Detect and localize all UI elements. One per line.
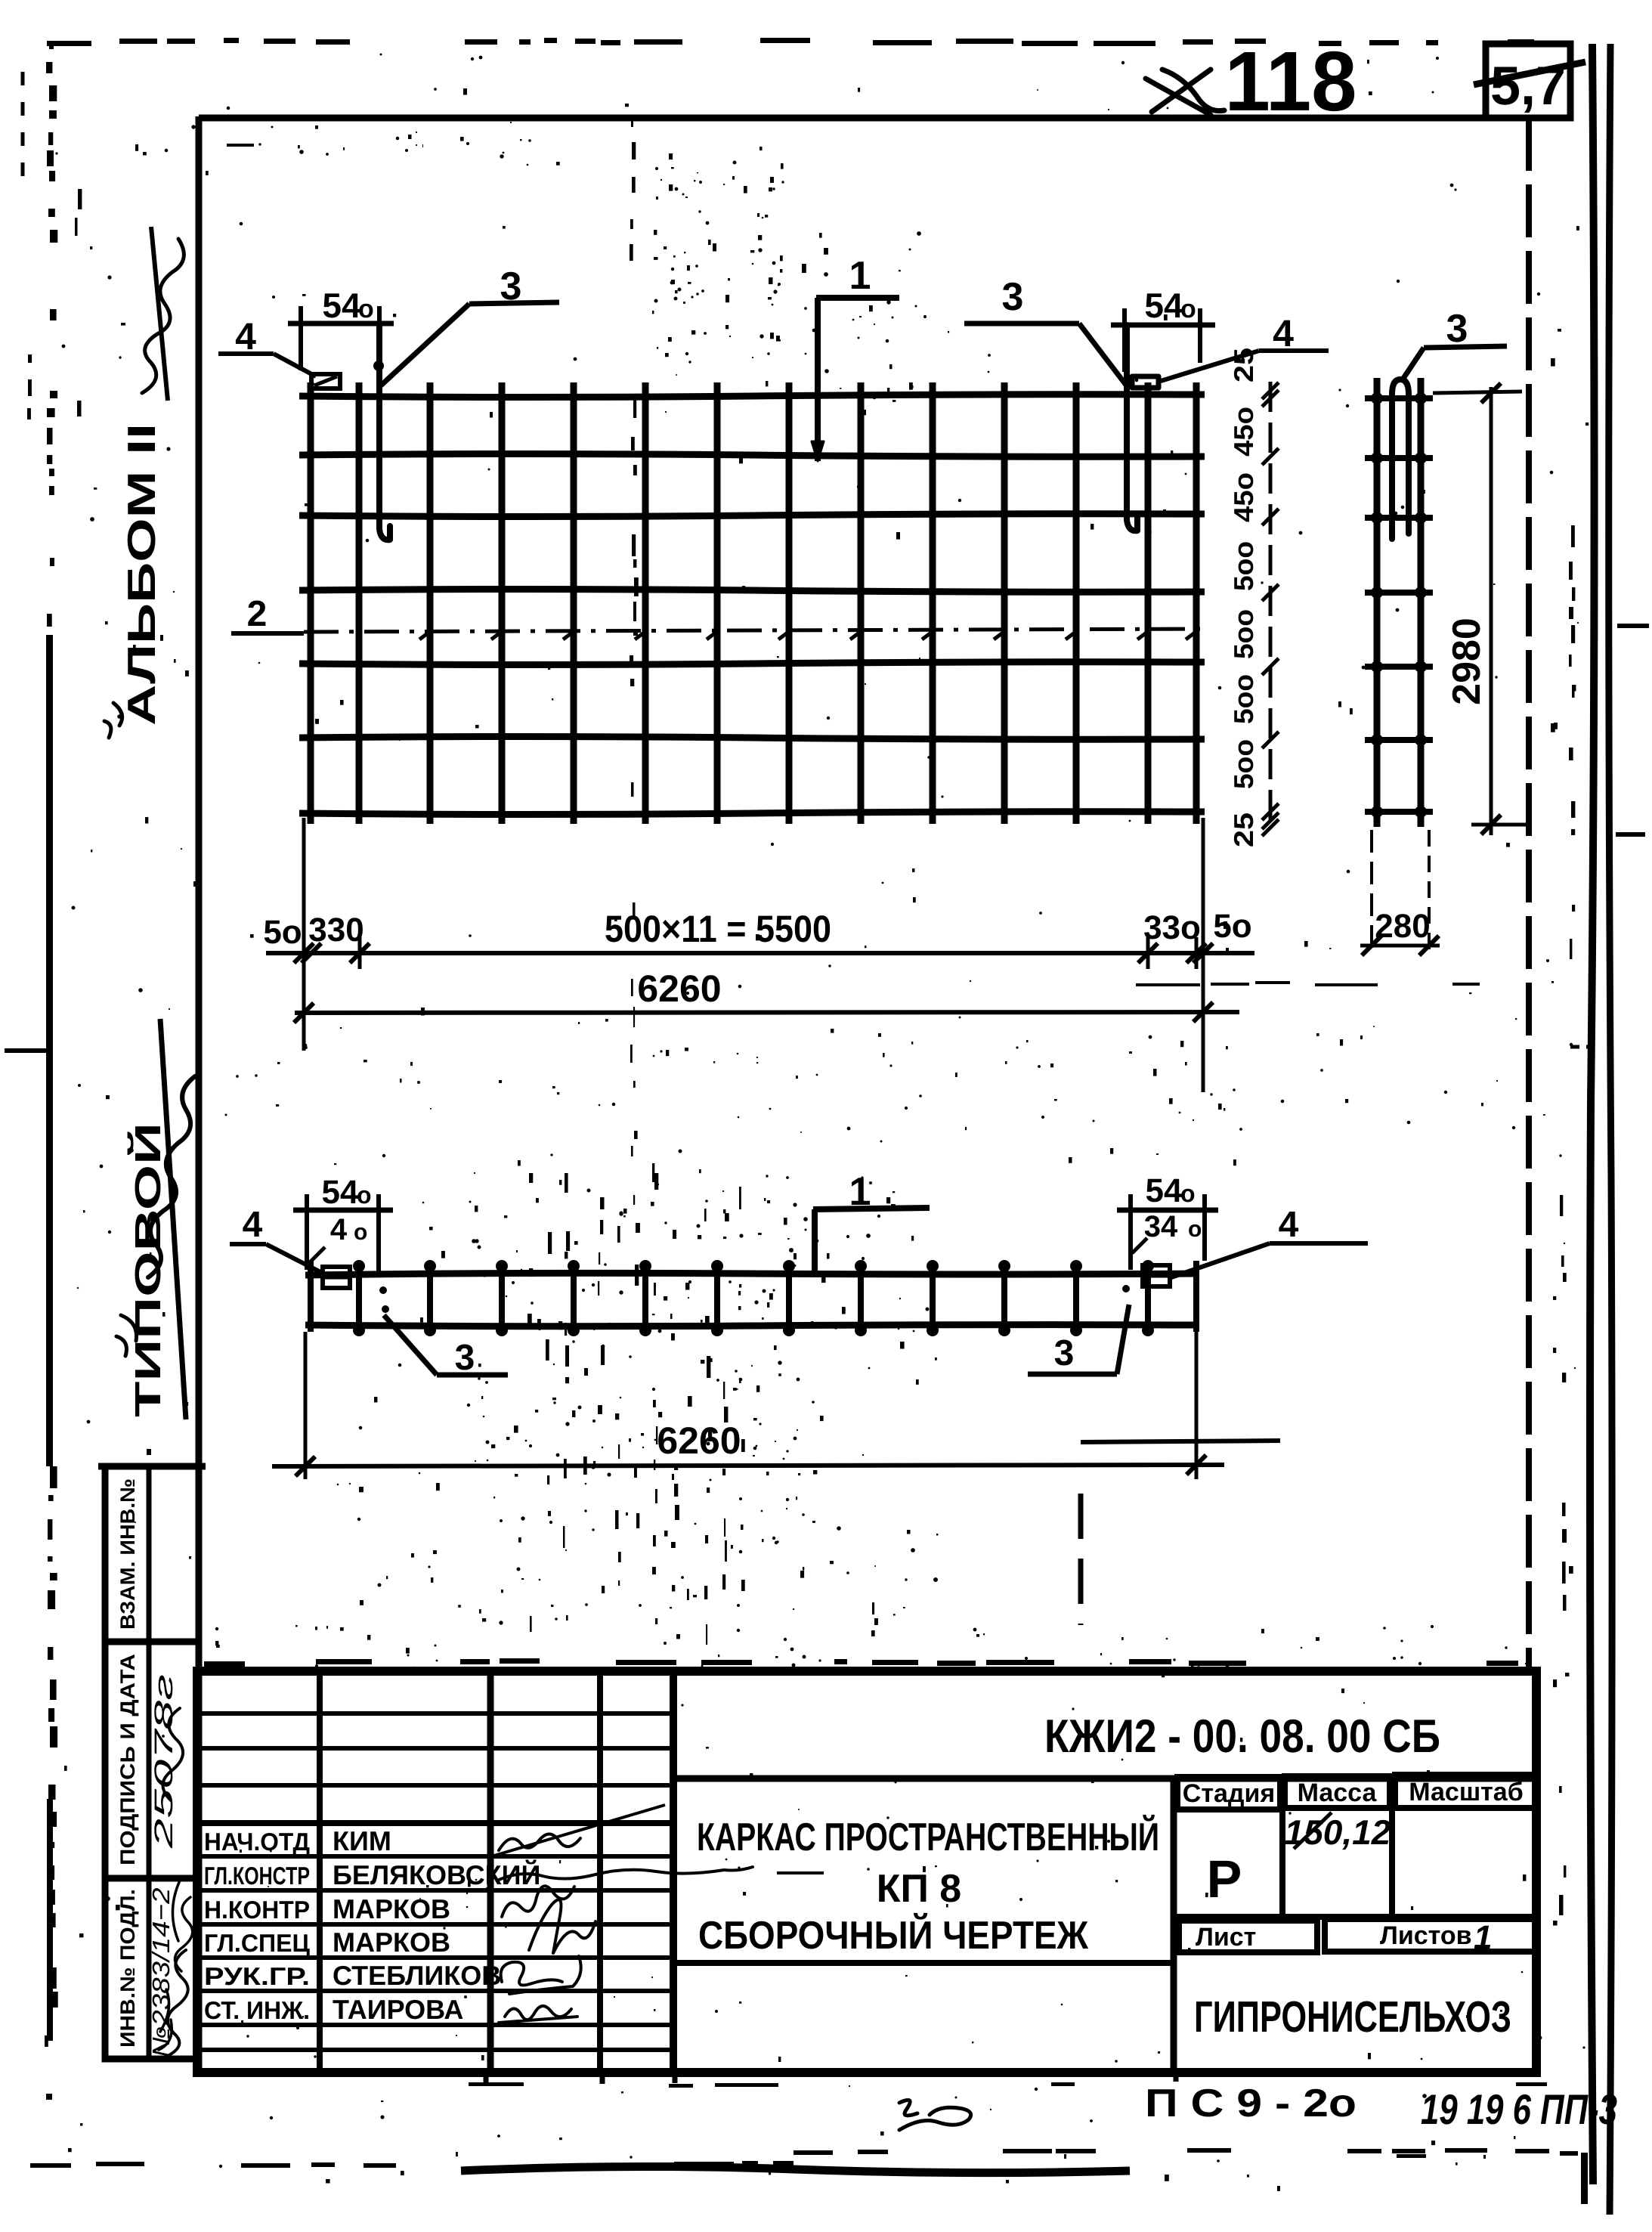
svg-text:Масса: Масса <box>1298 1778 1378 1807</box>
svg-text:o: o <box>358 295 374 324</box>
svg-text:54: 54 <box>1146 1172 1183 1209</box>
svg-text:Р: Р <box>1207 1850 1242 1908</box>
svg-text:Н.КОНТР: Н.КОНТР <box>204 1896 310 1924</box>
svg-text:КАРКАС ПРОСТРАНСТВЕННЫЙ: КАРКАС ПРОСТРАНСТВЕННЫЙ <box>697 1814 1159 1859</box>
svg-text:ГИПРОНИСЕЛЬХОЗ: ГИПРОНИСЕЛЬХОЗ <box>1194 1992 1511 2042</box>
svg-text:1: 1 <box>1474 1919 1492 1956</box>
svg-text:118: 118 <box>1225 34 1357 128</box>
svg-text:1: 1 <box>849 254 871 298</box>
svg-text:ИНВ.№ ПОДЛ.: ИНВ.№ ПОДЛ. <box>116 1889 139 2048</box>
svg-text:3: 3 <box>1054 1333 1075 1373</box>
svg-text:ГЛ.СПЕЦ: ГЛ.СПЕЦ <box>204 1929 310 1957</box>
svg-text:НАЧ.ОТД: НАЧ.ОТД <box>204 1828 310 1856</box>
svg-text:Масштаб: Масштаб <box>1409 1778 1523 1806</box>
svg-text:СБОРОЧНЫЙ ЧЕРТЕЖ: СБОРОЧНЫЙ ЧЕРТЕЖ <box>698 1912 1089 1958</box>
svg-text:4: 4 <box>330 1213 348 1246</box>
svg-text:КЖИ2 - 00. 08. 00 СБ: КЖИ2 - 00. 08. 00 СБ <box>1044 1710 1440 1763</box>
svg-text:3: 3 <box>1002 275 1024 319</box>
svg-text:ГЛ.КОНСТР: ГЛ.КОНСТР <box>204 1862 310 1890</box>
svg-text:6260: 6260 <box>637 967 721 1010</box>
svg-text:5oo: 5oo <box>1228 609 1259 659</box>
svg-text:5oo: 5oo <box>1228 674 1259 724</box>
svg-text:2: 2 <box>247 594 268 634</box>
svg-text:o: o <box>1188 1217 1202 1242</box>
svg-text:o: o <box>357 1181 372 1209</box>
svg-text:25078г: 25078г <box>150 1674 178 1850</box>
svg-text:4: 4 <box>1273 312 1294 354</box>
svg-text:4: 4 <box>243 1205 263 1245</box>
svg-text:2980: 2980 <box>1445 618 1489 705</box>
svg-text:5oo: 5oo <box>1228 739 1259 789</box>
svg-text:5o: 5o <box>1213 908 1251 945</box>
svg-text:Лист: Лист <box>1196 1923 1256 1952</box>
svg-text:РУК.ГР.: РУК.ГР. <box>204 1962 310 1990</box>
svg-text:МАРКОВ: МАРКОВ <box>333 1927 450 1958</box>
svg-text:5o: 5o <box>263 914 302 951</box>
svg-text:54: 54 <box>322 286 361 325</box>
svg-text:СТ. ИНЖ.: СТ. ИНЖ. <box>204 1996 310 2024</box>
svg-text:45o: 45o <box>1228 407 1259 457</box>
svg-text:4: 4 <box>1279 1205 1299 1245</box>
svg-text:ВЗАМ. ИНВ.№: ВЗАМ. ИНВ.№ <box>116 1478 139 1630</box>
svg-text:Стадия: Стадия <box>1183 1779 1275 1808</box>
svg-text:330: 330 <box>308 912 364 949</box>
svg-text:3: 3 <box>455 1338 475 1378</box>
svg-text:o: o <box>354 1220 367 1245</box>
svg-text:25: 25 <box>1228 348 1259 382</box>
svg-text:280: 280 <box>1375 908 1430 945</box>
svg-text:45o: 45o <box>1228 472 1259 522</box>
svg-text:o: o <box>1180 1180 1196 1207</box>
svg-text:6260: 6260 <box>657 1419 741 1462</box>
svg-text:МАРКОВ: МАРКОВ <box>333 1893 450 1924</box>
svg-text:СТЕБЛИКОВ: СТЕБЛИКОВ <box>333 1960 501 1991</box>
svg-text:КП 8: КП 8 <box>877 1867 961 1911</box>
svg-text:150,12: 150,12 <box>1285 1813 1391 1852</box>
svg-text:500×11 = 5500: 500×11 = 5500 <box>605 908 831 950</box>
svg-text:33o: 33o <box>1143 909 1201 946</box>
svg-text:ПОДПИСЬ И ДАТА: ПОДПИСЬ И ДАТА <box>116 1654 139 1865</box>
svg-text:ТАИРОВА: ТАИРОВА <box>333 1994 463 2025</box>
svg-text:4: 4 <box>235 315 256 358</box>
svg-text:Листов: Листов <box>1380 1921 1472 1950</box>
svg-text:ТИПОВОЙ: ТИПОВОЙ <box>127 1122 169 1417</box>
svg-text:25: 25 <box>1228 813 1259 847</box>
svg-text:5oo: 5oo <box>1228 541 1259 591</box>
svg-text:54: 54 <box>322 1174 359 1211</box>
svg-text:19 19 6 ПП-3: 19 19 6 ПП-3 <box>1421 2085 1617 2133</box>
svg-text:34: 34 <box>1144 1210 1178 1243</box>
svg-text:3: 3 <box>1446 307 1468 351</box>
svg-text:КИМ: КИМ <box>333 1825 391 1856</box>
svg-text:o: o <box>1180 295 1196 324</box>
svg-text:АЛЬБОМ II: АЛЬБОМ II <box>120 423 164 726</box>
